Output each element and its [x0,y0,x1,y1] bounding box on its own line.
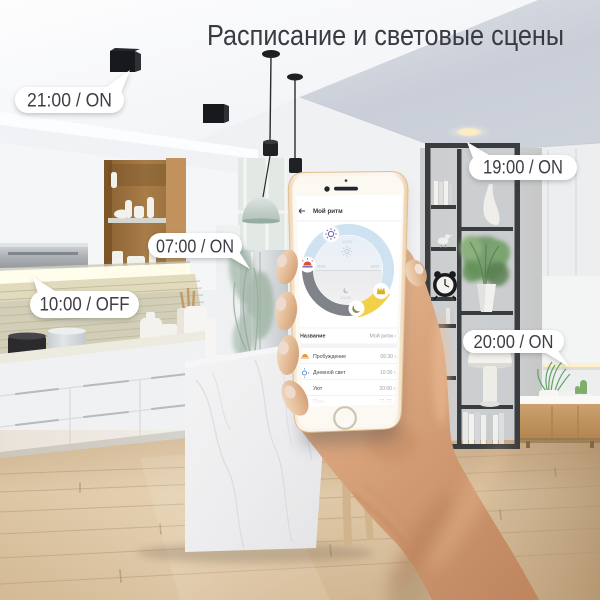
svg-text:Расписание и световые сцены: Расписание и световые сцены [207,20,564,52]
svg-text:10:30 ›: 10:30 › [380,370,396,376]
svg-text:20:00 / ON: 20:00 / ON [474,332,554,352]
svg-text:Дневной свет: Дневной свет [313,369,346,376]
svg-text:13:00: 13:00 [342,240,352,244]
svg-text:Мой ритм: Мой ритм [313,208,343,215]
svg-text:Пробуждение: Пробуждение [313,354,346,360]
svg-text:21:00 / ON: 21:00 / ON [27,90,112,111]
svg-text:01:00: 01:00 [341,296,351,300]
svg-text:07:00 / ON: 07:00 / ON [156,235,234,256]
svg-text:Уют: Уют [313,386,323,392]
svg-text:Название: Название [300,334,325,340]
svg-text:19:00 / ON: 19:00 / ON [483,157,563,178]
svg-text:06:00: 06:00 [317,265,326,269]
svg-text:18:00: 18:00 [371,265,380,269]
svg-text:10:00 / OFF: 10:00 / OFF [40,295,130,316]
svg-text:Мой ритм ›: Мой ритм › [370,333,397,340]
svg-text:06:30 ›: 06:30 › [380,354,396,360]
svg-text:20:00 ›: 20:00 › [379,386,395,392]
